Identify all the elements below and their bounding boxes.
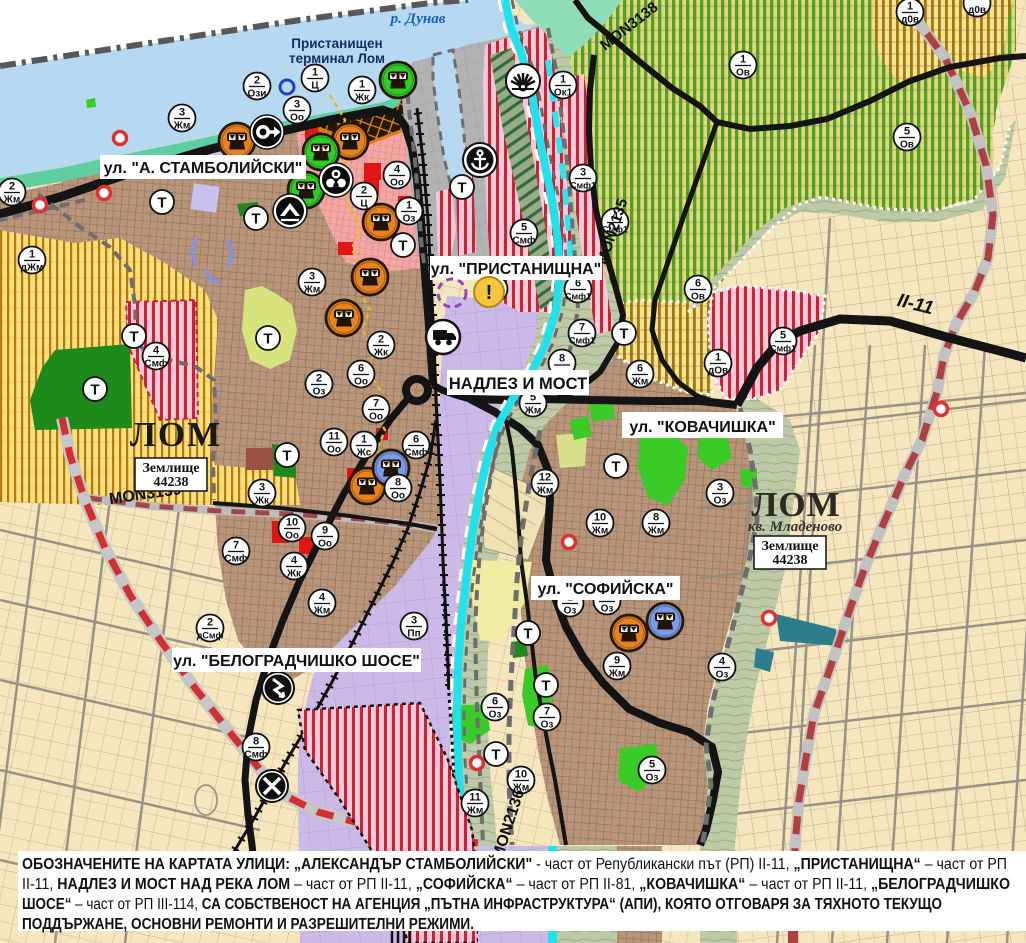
svg-text:Ок1: Ок1	[554, 88, 573, 99]
svg-text:Оз: Оз	[601, 604, 614, 615]
svg-text:Оз: Оз	[403, 214, 416, 225]
svg-text:10: 10	[286, 517, 298, 529]
svg-text:Оо: Оо	[285, 531, 299, 542]
svg-text:Смф1: Смф1	[565, 292, 591, 302]
svg-text:Т: Т	[251, 211, 260, 228]
svg-text:5: 5	[649, 759, 655, 771]
svg-text:Ов: Ов	[900, 140, 914, 151]
svg-text:3: 3	[411, 615, 417, 627]
svg-text:2: 2	[9, 181, 15, 193]
svg-text:д0в: д0в	[901, 15, 919, 26]
svg-text:5: 5	[780, 330, 786, 342]
svg-text:Жм: Жм	[524, 406, 541, 417]
svg-text:3: 3	[309, 271, 315, 283]
svg-text:2: 2	[254, 75, 260, 87]
svg-text:Оо: Оо	[369, 412, 383, 423]
svg-text:Жм: Жм	[631, 377, 648, 388]
svg-text:1: 1	[29, 249, 35, 261]
svg-text:1: 1	[406, 200, 412, 212]
svg-text:Оо: Оо	[327, 445, 341, 456]
svg-text:Оз: Оз	[541, 720, 554, 731]
svg-text:Т: Т	[611, 459, 620, 476]
svg-text:8: 8	[253, 736, 259, 748]
svg-text:1: 1	[560, 74, 566, 86]
svg-text:44238: 44238	[154, 475, 189, 490]
svg-text:7: 7	[373, 398, 379, 410]
svg-text:ул. "СОФИЙСКА": ул. "СОФИЙСКА"	[537, 579, 673, 598]
svg-text:Жм: Жм	[303, 285, 320, 296]
svg-text:Оз: Оз	[564, 606, 577, 617]
svg-text:5: 5	[521, 222, 527, 234]
svg-text:11: 11	[469, 792, 481, 804]
svg-text:Жм: Жм	[647, 526, 664, 537]
svg-text:7: 7	[233, 540, 239, 552]
svg-text:Смф1: Смф1	[570, 181, 596, 191]
svg-text:1: 1	[361, 434, 367, 446]
svg-text:ул. "ПРИСТАНИЩНА": ул. "ПРИСТАНИЩНА"	[431, 261, 602, 278]
svg-text:Т: Т	[491, 747, 500, 764]
svg-text:1: 1	[740, 54, 746, 66]
svg-text:3: 3	[580, 167, 586, 179]
svg-text:12: 12	[539, 472, 551, 484]
svg-text:1: 1	[359, 79, 365, 91]
svg-text:8: 8	[653, 512, 659, 524]
svg-text:кв. Младеново: кв. Младеново	[748, 519, 842, 535]
svg-text:4: 4	[719, 656, 726, 668]
svg-text:Жм: Жм	[536, 486, 553, 497]
svg-text:Жм: Жм	[466, 806, 483, 817]
svg-text:Оз: Оз	[313, 387, 326, 398]
svg-text:4: 4	[319, 592, 326, 604]
svg-text:Т: Т	[398, 238, 407, 255]
svg-text:2: 2	[316, 373, 322, 385]
svg-text:Т: Т	[457, 180, 466, 197]
svg-text:ШОСЕ“ – част от РП III-114, СА: ШОСЕ“ – част от РП III-114, СА СОБСТВЕНО…	[22, 896, 942, 913]
svg-text:Оо: Оо	[390, 178, 404, 189]
svg-text:Ози: Ози	[248, 89, 267, 100]
svg-text:7: 7	[544, 706, 550, 718]
svg-text:7: 7	[579, 322, 585, 334]
svg-text:8: 8	[559, 353, 565, 365]
svg-text:Т: Т	[541, 678, 550, 695]
svg-text:1: 1	[715, 352, 721, 364]
svg-text:Ц: Ц	[360, 199, 368, 210]
svg-text:2: 2	[378, 334, 384, 346]
svg-text:Смф: Смф	[404, 447, 427, 459]
svg-text:10: 10	[515, 769, 527, 781]
svg-text:д0в: д0в	[968, 5, 986, 16]
svg-text:8: 8	[395, 477, 401, 489]
svg-text:Жк: Жк	[373, 348, 389, 359]
svg-text:ОБОЗНАЧЕНИТЕ НА КАРТАТА УЛИЦИ:: ОБОЗНАЧЕНИТЕ НА КАРТАТА УЛИЦИ: „АЛЕКСАНД…	[22, 855, 1007, 873]
svg-text:Жк: Жк	[286, 569, 302, 580]
svg-text:Жм: Жм	[608, 669, 625, 680]
svg-text:Оо: Оо	[290, 113, 304, 124]
svg-text:Ц: Ц	[311, 81, 319, 92]
svg-text:р. Дунав: р. Дунав	[389, 11, 446, 27]
svg-text:Т: Т	[90, 382, 99, 399]
svg-text:ПОДДЪРЖАНЕ, ОСНОВНИ РЕМОНТИ И: ПОДДЪРЖАНЕ, ОСНОВНИ РЕМОНТИ И РАЗРЕШИТЕЛ…	[22, 916, 474, 933]
svg-text:Жм: Жм	[173, 121, 190, 132]
svg-text:Смф1: Смф1	[569, 336, 595, 346]
svg-text:терминал Лом: терминал Лом	[289, 51, 385, 66]
svg-text:Т: Т	[619, 326, 628, 343]
svg-text:5: 5	[904, 126, 910, 138]
svg-text:11: 11	[328, 431, 340, 443]
svg-text:Смф: Смф	[244, 749, 267, 761]
svg-text:Жм: Жм	[313, 606, 330, 617]
svg-text:6: 6	[492, 696, 498, 708]
svg-text:Смф1: Смф1	[770, 344, 796, 354]
svg-text:3: 3	[717, 482, 723, 494]
svg-text:Оз: Оз	[489, 710, 502, 721]
svg-text:4: 4	[153, 345, 160, 357]
svg-text:3: 3	[259, 482, 265, 494]
svg-text:Смф: Смф	[512, 235, 535, 247]
svg-text:4: 4	[394, 164, 401, 176]
svg-text:Жк: Жк	[354, 93, 370, 104]
svg-text:4: 4	[291, 555, 298, 567]
svg-text:Оо: Оо	[391, 491, 405, 502]
svg-text:3: 3	[294, 99, 300, 111]
svg-text:Смф: Смф	[144, 358, 167, 370]
svg-text:Смф: Смф	[224, 553, 247, 565]
svg-text:9: 9	[322, 525, 328, 537]
svg-text:2: 2	[207, 617, 213, 629]
svg-text:1: 1	[312, 67, 318, 79]
svg-text:6: 6	[637, 363, 643, 375]
svg-text:Пристанищен: Пристанищен	[291, 36, 382, 51]
svg-text:Жм: Жм	[591, 526, 608, 537]
svg-text:Т: Т	[523, 626, 532, 643]
svg-text:Пп: Пп	[407, 629, 420, 640]
svg-text:Оо: Оо	[318, 539, 332, 550]
svg-text:Землище: Землище	[761, 539, 818, 554]
svg-text:Оз: Оз	[646, 773, 659, 784]
svg-text:9: 9	[614, 655, 620, 667]
svg-text:44238: 44238	[773, 553, 808, 568]
svg-text:Т: Т	[129, 329, 138, 346]
svg-text:II-11, НАДЛЕЗ И МОСТ НАД РЕКА: II-11, НАДЛЕЗ И МОСТ НАД РЕКА ЛОМ – част…	[22, 875, 1010, 893]
svg-text:Оо: Оо	[354, 377, 368, 388]
svg-text:1: 1	[907, 1, 913, 13]
svg-text:2: 2	[361, 185, 367, 197]
svg-text:ул. "КОВАЧИШКА": ул. "КОВАЧИШКА"	[629, 419, 775, 436]
svg-text:дСмф: дСмф	[197, 631, 224, 641]
svg-text:Ов: Ов	[736, 68, 750, 79]
svg-text:НАДЛЕЗ И МОСТ: НАДЛЕЗ И МОСТ	[449, 375, 587, 393]
svg-text:Землище: Землище	[142, 461, 199, 476]
svg-text:3: 3	[179, 107, 185, 119]
svg-text:Т: Т	[263, 331, 272, 348]
svg-text:6: 6	[413, 434, 419, 446]
svg-text:6: 6	[695, 278, 701, 290]
svg-text:Оз: Оз	[716, 670, 729, 681]
svg-text:!: !	[486, 282, 493, 304]
svg-text:ЛОМ: ЛОМ	[130, 415, 222, 454]
svg-text:Жм: Жм	[3, 195, 20, 206]
svg-text:6: 6	[358, 363, 364, 375]
svg-text:дЖм: дЖм	[21, 263, 44, 274]
svg-text:ул. "БЕЛОГРАДЧИШКО ШОСЕ": ул. "БЕЛОГРАДЧИШКО ШОСЕ"	[173, 653, 420, 670]
svg-text:ул. "А. СТАМБОЛИЙСКИ": ул. "А. СТАМБОЛИЙСКИ"	[104, 158, 303, 177]
svg-text:Жк: Жк	[254, 496, 270, 507]
svg-text:Ов: Ов	[691, 292, 705, 303]
svg-text:Жс: Жс	[356, 448, 372, 459]
svg-text:Оз: Оз	[714, 496, 727, 507]
svg-text:Т: Т	[282, 448, 291, 465]
svg-text:10: 10	[594, 512, 606, 524]
svg-text:Т: Т	[157, 195, 166, 212]
svg-text:дОв: дОв	[708, 366, 728, 377]
